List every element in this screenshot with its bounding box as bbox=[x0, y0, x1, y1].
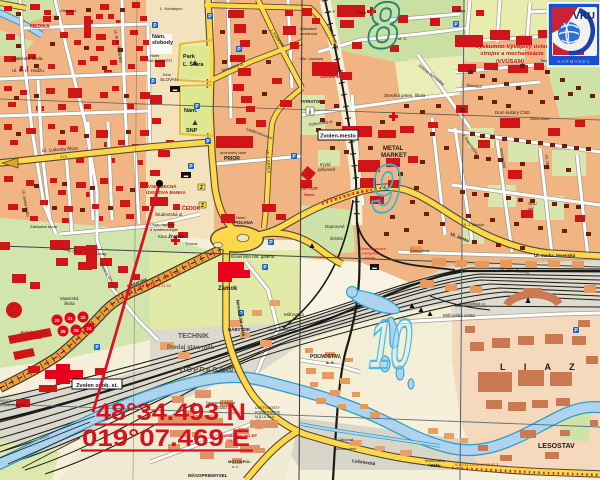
svg-text:V. F.: V. F. bbox=[328, 9, 336, 14]
svg-text:ÚVEROVÁ BANKA: ÚVEROVÁ BANKA bbox=[146, 189, 187, 195]
svg-text:Stredná priem. škola: Stredná priem. škola bbox=[384, 93, 426, 98]
svg-text:019°07.469 E: 019°07.469 E bbox=[82, 425, 250, 452]
svg-text:ihrisko: ihrisko bbox=[330, 236, 344, 241]
svg-text:Ul. M. H. Hodžu: Ul. M. H. Hodžu bbox=[12, 68, 44, 73]
svg-text:Základná: Základná bbox=[60, 8, 77, 13]
svg-text:Železničná: Železničná bbox=[410, 248, 430, 253]
svg-text:Môťovská cesta: Môťovská cesta bbox=[443, 313, 475, 318]
svg-text:DOPRASTAV: DOPRASTAV bbox=[180, 365, 235, 374]
svg-text:Z: Z bbox=[200, 185, 203, 191]
svg-text:LESOSTAV: LESOSTAV bbox=[538, 443, 575, 450]
svg-text:Branhofská ul.: Branhofská ul. bbox=[460, 301, 486, 306]
svg-text:24: 24 bbox=[86, 326, 92, 331]
svg-text:MEDIKA: MEDIKA bbox=[30, 24, 50, 30]
svg-text:KONŠTRUKCIE: KONŠTRUKCIE bbox=[255, 410, 281, 415]
svg-text:TIP-TOP: TIP-TOP bbox=[300, 186, 318, 191]
svg-text:Ul. Janka Jesenská: Ul. Janka Jesenská bbox=[534, 253, 576, 258]
svg-text:a. s.: a. s. bbox=[232, 465, 239, 469]
svg-text:21: 21 bbox=[67, 316, 73, 321]
svg-text:Materská škola: Materská škola bbox=[12, 56, 43, 61]
svg-text:Dopravné: Dopravné bbox=[325, 224, 345, 229]
svg-text:Kino ŽIVENA: Kino ŽIVENA bbox=[158, 232, 186, 239]
svg-text:M. S.: M. S. bbox=[398, 36, 407, 41]
svg-text:▬: ▬ bbox=[173, 87, 178, 92]
svg-text:KONŠTRUKCIE: KONŠTRUKCIE bbox=[0, 403, 26, 408]
svg-text:Z: Z bbox=[201, 203, 204, 209]
svg-text:plávareň: plávareň bbox=[317, 167, 336, 172]
svg-text:ČEDOK: ČEDOK bbox=[182, 205, 200, 212]
svg-text:Zvolen-mesto: Zvolen-mesto bbox=[320, 134, 356, 140]
svg-text:PRIOR: PRIOR bbox=[224, 156, 240, 162]
svg-text:Žilina stred: Žilina stred bbox=[530, 116, 550, 121]
svg-text:14 16 18 20 21 24: 14 16 18 20 21 24 bbox=[140, 284, 171, 288]
svg-text:zdiedenie: zdiedenie bbox=[320, 74, 341, 79]
svg-text:SNP: SNP bbox=[186, 128, 198, 134]
svg-text:Ľ. Kubányho: Ľ. Kubányho bbox=[160, 6, 183, 11]
svg-text:Park: Park bbox=[183, 54, 196, 60]
svg-text:a epidemiológie: a epidemiológie bbox=[150, 227, 179, 232]
svg-text:i: i bbox=[309, 109, 311, 116]
svg-text:1. mája: 1. mája bbox=[452, 8, 466, 13]
svg-text:Zámok: Zámok bbox=[218, 286, 238, 292]
svg-text:48°34.493 N: 48°34.493 N bbox=[96, 399, 246, 426]
svg-text:Základná škola: Základná škola bbox=[30, 224, 58, 229]
svg-text:Anság: Anság bbox=[95, 251, 106, 256]
svg-text:Dom kultúry ČSD: Dom kultúry ČSD bbox=[495, 109, 531, 115]
svg-text:MOSTY: MOSTY bbox=[0, 399, 13, 403]
svg-text:Tólha: Tólha bbox=[356, 10, 367, 15]
svg-text:26: 26 bbox=[60, 329, 66, 334]
svg-text:M.E.I.& s.r.o.: M.E.I.& s.r.o. bbox=[255, 415, 275, 419]
svg-text:L I A Z: L I A Z bbox=[500, 362, 583, 372]
svg-text:závody: závody bbox=[364, 256, 375, 260]
svg-text:MÄSOPRIEMYSEL: MÄSOPRIEMYSEL bbox=[188, 472, 228, 478]
svg-text:NÁBYTOK: NÁBYTOK bbox=[228, 326, 251, 332]
svg-text:Študentská ul.: Študentská ul. bbox=[155, 211, 184, 217]
svg-text:VKU: VKU bbox=[573, 10, 595, 22]
svg-text:energetické: energetické bbox=[362, 252, 380, 256]
svg-text:Ľ. Štúra: Ľ. Štúra bbox=[183, 60, 204, 68]
svg-text:Slovenská nár. galéria: Slovenská nár. galéria bbox=[230, 254, 275, 259]
svg-text:Garni: Garni bbox=[304, 192, 314, 197]
svg-text:slobody: slobody bbox=[152, 40, 174, 46]
svg-text:cesta: cesta bbox=[428, 462, 440, 468]
svg-text:Môťovská: Môťovská bbox=[284, 312, 304, 317]
svg-text:úbova ciest: úbova ciest bbox=[336, 446, 357, 451]
svg-text:25: 25 bbox=[73, 328, 79, 333]
svg-text:Trhová: Trhová bbox=[185, 241, 198, 246]
svg-text:Stredoslovenské: Stredoslovenské bbox=[360, 247, 386, 251]
svg-text:stanica: stanica bbox=[26, 335, 42, 340]
svg-text:škola: škola bbox=[64, 301, 75, 306]
svg-text:SLOVAN: SLOVAN bbox=[160, 77, 178, 82]
svg-text:Nám.: Nám. bbox=[184, 108, 198, 114]
svg-text:▬: ▬ bbox=[184, 173, 189, 178]
svg-text:Zvolen osob. st.: Zvolen osob. st. bbox=[76, 383, 118, 389]
svg-text:▬: ▬ bbox=[372, 265, 377, 270]
svg-text:5 7 9 11 13-15 17 19 21 3: 5 7 9 11 13-15 17 19 21 3 bbox=[455, 463, 498, 467]
svg-text:strojov a mechanizácie: strojov a mechanizácie bbox=[480, 51, 544, 57]
svg-text:22: 22 bbox=[80, 315, 86, 320]
svg-text:NA NÁMESTÍ: NA NÁMESTÍ bbox=[148, 58, 173, 63]
svg-text:umelecká: umelecká bbox=[300, 31, 318, 36]
svg-text:Geriatrická: Geriatrická bbox=[318, 68, 342, 73]
svg-text:20: 20 bbox=[54, 318, 60, 323]
svg-text:(VVÚSAM): (VVÚSAM) bbox=[496, 58, 525, 65]
svg-text:Ul. S. Tomášika: Ul. S. Tomášika bbox=[268, 327, 296, 332]
svg-text:Údržand: Údržand bbox=[338, 437, 354, 442]
svg-text:CESTY-MOSTY: CESTY-MOSTY bbox=[255, 406, 281, 410]
svg-text:MOTOSPOL: MOTOSPOL bbox=[228, 459, 251, 464]
svg-text:Ul. J. Donča: Ul. J. Donča bbox=[462, 222, 485, 227]
svg-text:373: 373 bbox=[60, 154, 67, 159]
svg-text:Okr. úradova: Okr. úradova bbox=[300, 56, 324, 61]
svg-text:HARMANEC: HARMANEC bbox=[557, 59, 591, 64]
svg-text:POĽANA: POĽANA bbox=[234, 220, 254, 225]
svg-text:a. s.: a. s. bbox=[326, 360, 335, 365]
svg-text:Predaj stav. mat.: Predaj stav. mat. bbox=[167, 345, 215, 351]
svg-text:žel.: žel. bbox=[528, 206, 534, 211]
svg-text:TECHNIK: TECHNIK bbox=[178, 333, 209, 340]
svg-text:Výskumno-Vývojový ústav: Výskumno-Vývojový ústav bbox=[475, 44, 549, 50]
svg-text:obchodný dom: obchodný dom bbox=[220, 150, 247, 155]
